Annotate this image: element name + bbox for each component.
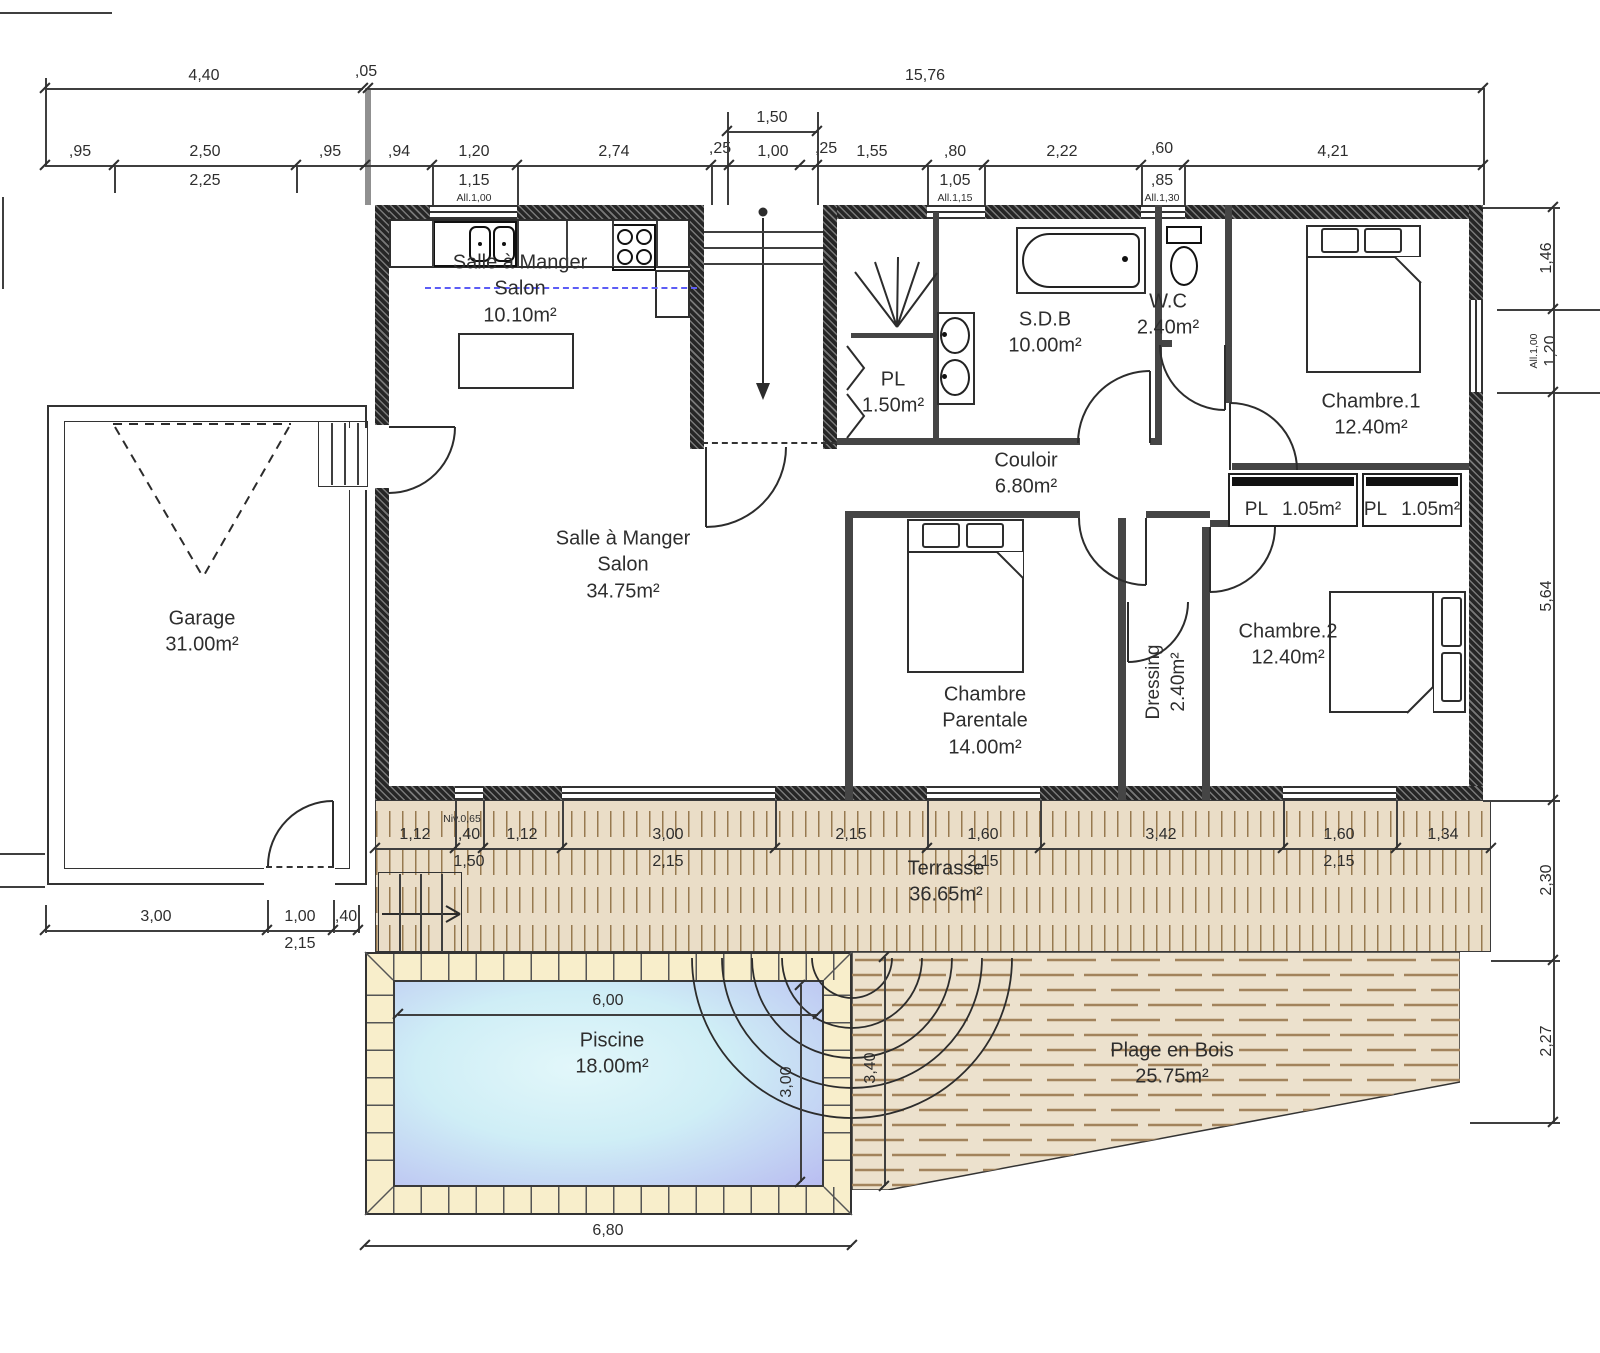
wall-right-2 xyxy=(1469,392,1483,800)
wall-top-2 xyxy=(517,205,690,219)
label-piscine: Piscine18.00m² xyxy=(575,1028,648,1081)
dim-line xyxy=(927,165,929,205)
dim-line xyxy=(368,88,1483,90)
dim-line xyxy=(1040,800,1042,848)
wall-wc-chambre1 xyxy=(1225,205,1232,403)
dim-line xyxy=(1396,800,1398,848)
toilet-bowl-icon xyxy=(1170,246,1198,286)
wall-top-3 xyxy=(837,205,927,219)
dim-label: 3,00 xyxy=(778,1066,796,1097)
dim-label: 1,55 xyxy=(856,143,887,161)
burner-3 xyxy=(617,249,633,265)
dim-line xyxy=(399,874,401,952)
wall-bottom-5 xyxy=(1396,786,1483,800)
label-salle-a-manger-main: Salle à MangerSalon34.75m² xyxy=(556,525,691,604)
dim-line xyxy=(483,800,485,848)
dim-line xyxy=(45,88,363,90)
dim-label: 2,15 xyxy=(967,853,998,871)
dim-line xyxy=(562,800,564,848)
wall-bottom-2 xyxy=(483,786,562,800)
dim-label: Niv.0,65 xyxy=(443,813,481,825)
dim-label: ,85 xyxy=(1151,172,1173,190)
dim-label: 2,15 xyxy=(284,935,315,953)
dim-line xyxy=(45,930,358,932)
dim-label: 1,00 xyxy=(284,908,315,926)
chambre1-window xyxy=(1469,300,1483,392)
burner-1 xyxy=(617,229,633,245)
closet-area: 1.05m² xyxy=(1401,499,1460,521)
dim-label: 15,76 xyxy=(905,67,945,85)
salon-small-window xyxy=(455,786,483,800)
wall-right-1 xyxy=(1469,205,1483,300)
pillow xyxy=(1321,228,1359,253)
dim-line xyxy=(455,800,457,848)
pillow xyxy=(966,523,1004,548)
dim-label: All.1,15 xyxy=(937,192,972,204)
dim-line xyxy=(357,423,359,485)
dim-line xyxy=(566,221,568,267)
label-garage: Garage31.00m² xyxy=(165,606,238,659)
wall-couloir-parentale xyxy=(851,511,1080,518)
closet-label: PL xyxy=(1245,499,1268,521)
dining-table xyxy=(458,333,574,389)
dim-line xyxy=(612,221,614,267)
entry-side-steps xyxy=(318,421,368,487)
dim-label: ,05 xyxy=(355,63,377,81)
dim-label: All.1,30 xyxy=(1144,192,1179,204)
label-wc: W.C2.40m² xyxy=(1137,289,1199,342)
dim-line xyxy=(1283,800,1285,848)
dim-line xyxy=(441,874,443,952)
label-dressing: Dressing2.40m² xyxy=(1141,645,1191,720)
dim-label: 3,00 xyxy=(652,826,683,844)
dim-line xyxy=(727,131,817,133)
burner-4 xyxy=(636,249,652,265)
dim-line xyxy=(704,263,823,265)
dim-label: 2,25 xyxy=(189,172,220,190)
dim-label: 1,20 xyxy=(458,143,489,161)
dim-label: 1,50 xyxy=(453,853,484,871)
dim-line xyxy=(0,12,112,14)
dim-label: 1,60 xyxy=(1323,826,1354,844)
wc-window xyxy=(1141,205,1185,219)
dim-line xyxy=(1483,88,1485,205)
dim-label: All.1,00 xyxy=(1528,333,1540,368)
closet-door-bar xyxy=(1232,477,1354,486)
dim-line xyxy=(331,423,333,485)
tile-row-left xyxy=(367,980,393,1187)
dim-label: ,95 xyxy=(319,143,341,161)
pillow xyxy=(1441,652,1462,702)
dim-line xyxy=(517,221,519,267)
dim-label: 3,40 xyxy=(862,1052,880,1083)
wall-bottom-1 xyxy=(375,786,455,800)
closet-area: 1.05m² xyxy=(1282,499,1341,521)
dim-label: 2,22 xyxy=(1046,143,1077,161)
dim-label: 2,15 xyxy=(652,853,683,871)
dim-label: 1,50 xyxy=(756,109,787,127)
dim-label: 1,15 xyxy=(458,172,489,190)
dim-label: 4,21 xyxy=(1317,143,1348,161)
dim-label: ,40 xyxy=(458,826,480,844)
label-plage: Plage en Bois25.75m² xyxy=(1110,1038,1233,1091)
wall-couloir-stub xyxy=(1146,511,1210,518)
dim-line xyxy=(45,78,47,165)
dim-line xyxy=(656,221,658,267)
dim-line xyxy=(0,853,45,855)
dim-line xyxy=(711,165,713,205)
dim-label: 3,42 xyxy=(1145,826,1176,844)
wall-top-4 xyxy=(985,205,1141,219)
dim-line xyxy=(1141,165,1143,205)
dim-label: 4,40 xyxy=(188,67,219,85)
tile-row-right xyxy=(824,980,850,1187)
dim-line xyxy=(884,957,886,1186)
dim-label: 2,15 xyxy=(835,826,866,844)
dim-line xyxy=(420,874,422,952)
label-couloir: Couloir6.80m² xyxy=(994,448,1057,501)
dim-label: 1,05 xyxy=(939,172,970,190)
closet-pl-2: PL 1.05m² xyxy=(1362,473,1462,527)
dim-label: 1,34 xyxy=(1427,826,1458,844)
wall-bottom-4 xyxy=(1040,786,1283,800)
wall-parentale-dressing xyxy=(1118,518,1126,800)
dim-line xyxy=(704,231,823,233)
dim-label: 6,80 xyxy=(592,1222,623,1240)
tile-row-bottom xyxy=(367,1187,850,1213)
label-pl-bain: PL1.50m² xyxy=(862,367,924,420)
wall-dressing-chambre2 xyxy=(1202,527,1210,800)
dim-line xyxy=(704,247,823,249)
dim-line xyxy=(800,985,802,1182)
label-sdb: S.D.B10.00m² xyxy=(1008,307,1081,360)
dim-label: 3,00 xyxy=(140,908,171,926)
dim-label: 1,60 xyxy=(967,826,998,844)
extension-bar xyxy=(365,88,371,205)
label-chambre1: Chambre.112.40m² xyxy=(1322,389,1421,442)
porch-wall-right xyxy=(823,205,837,449)
basin-1-faucet xyxy=(942,332,947,337)
porch-wall-left xyxy=(690,205,704,449)
tile-row-top xyxy=(367,954,850,980)
parentale-window xyxy=(927,786,1040,800)
dim-label: 1,00 xyxy=(757,143,788,161)
dim-line xyxy=(927,800,929,848)
dim-line xyxy=(114,165,116,193)
pillow xyxy=(1364,228,1402,253)
dim-line xyxy=(775,800,777,848)
sink-drain-right xyxy=(502,242,506,246)
dim-line xyxy=(398,1014,818,1016)
wall-chambre2-stub xyxy=(1210,520,1228,527)
chambre2-window xyxy=(1283,786,1396,800)
dim-line xyxy=(1553,207,1555,1122)
wall-left-2 xyxy=(375,488,389,800)
dim-line xyxy=(432,221,434,267)
dim-label: 6,00 xyxy=(592,992,623,1010)
pillow xyxy=(1441,597,1462,647)
closet-label: PL xyxy=(1364,499,1387,521)
dim-line xyxy=(432,165,434,205)
toilet-tank-icon xyxy=(1166,226,1202,244)
dim-line xyxy=(365,1245,852,1247)
dim-label: 2,15 xyxy=(1323,853,1354,871)
dim-label: ,95 xyxy=(69,143,91,161)
dim-label: ,94 xyxy=(388,143,410,161)
dim-line xyxy=(296,165,298,193)
basin-2-faucet xyxy=(942,374,947,379)
wall-sdb-couloir xyxy=(837,438,1080,445)
dim-label: ,40 xyxy=(335,908,357,926)
dim-line xyxy=(1470,1122,1560,1124)
wall-chambre1-bottom xyxy=(1232,463,1469,470)
dim-line xyxy=(517,165,519,205)
garage-door-threshold xyxy=(266,866,334,868)
dim-label: ,60 xyxy=(1151,140,1173,158)
dim-label: 1,20 xyxy=(1542,335,1560,366)
dim-line xyxy=(375,848,1491,850)
dim-line xyxy=(45,165,1483,167)
entry-threshold xyxy=(702,442,837,444)
wall-shower-pl xyxy=(851,333,939,338)
dim-label: ,80 xyxy=(944,143,966,161)
dim-label: All.1,00 xyxy=(456,192,491,204)
dim-label: 1,12 xyxy=(399,826,430,844)
wall-left-1 xyxy=(375,205,389,425)
garage-door-opening xyxy=(264,860,335,887)
dim-line xyxy=(2,197,4,289)
dim-line xyxy=(817,112,819,205)
bathtub-drain xyxy=(1122,256,1128,262)
dim-line xyxy=(1184,165,1186,205)
wall-salon-parentale xyxy=(845,511,853,800)
dim-line xyxy=(0,886,45,888)
dim-line xyxy=(984,165,986,205)
pool-water xyxy=(393,980,824,1187)
dim-label: 1,12 xyxy=(506,826,537,844)
dim-label: 2,50 xyxy=(189,143,220,161)
dim-line xyxy=(344,423,346,485)
kitchen-window xyxy=(430,205,517,219)
pillow xyxy=(922,523,960,548)
floor-plan: PL 1.05m² PL 1.05m² Salle à MangerSalon1… xyxy=(0,0,1600,1353)
dim-label: 2,74 xyxy=(598,143,629,161)
label-parentale: ChambreParentale14.00m² xyxy=(942,681,1028,760)
closet-pl-1: PL 1.05m² xyxy=(1228,473,1358,527)
dim-line xyxy=(727,112,729,205)
sink-drain-left xyxy=(478,242,482,246)
closet-door-bar xyxy=(1366,477,1458,486)
salon-bay-window xyxy=(562,786,775,800)
kitchen-cabinet xyxy=(655,270,690,318)
label-chambre2: Chambre.212.40m² xyxy=(1239,619,1338,672)
burner-2 xyxy=(636,229,652,245)
